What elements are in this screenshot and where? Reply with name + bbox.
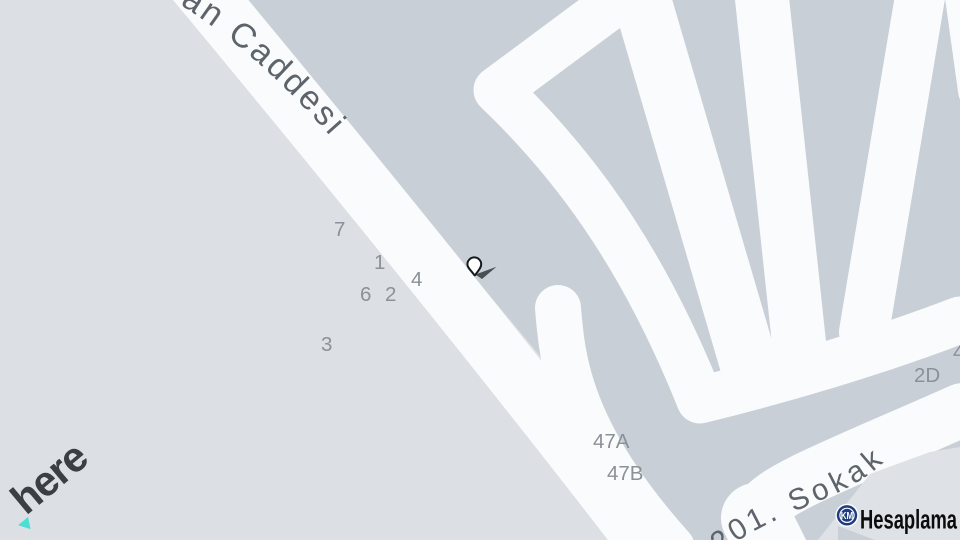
svg-text:7: 7 <box>334 218 345 241</box>
svg-text:1: 1 <box>374 251 385 274</box>
svg-text:47B: 47B <box>607 462 643 485</box>
svg-text:4: 4 <box>411 268 422 291</box>
svg-text:2D: 2D <box>914 364 940 387</box>
svg-text:KM: KM <box>841 510 854 522</box>
svg-text:3: 3 <box>321 333 332 356</box>
svg-text:4: 4 <box>953 341 960 364</box>
svg-text:6: 6 <box>360 283 371 306</box>
svg-text:2: 2 <box>385 283 396 306</box>
svg-text:47A: 47A <box>593 430 630 453</box>
svg-text:Hesaplama: Hesaplama <box>860 504 957 534</box>
